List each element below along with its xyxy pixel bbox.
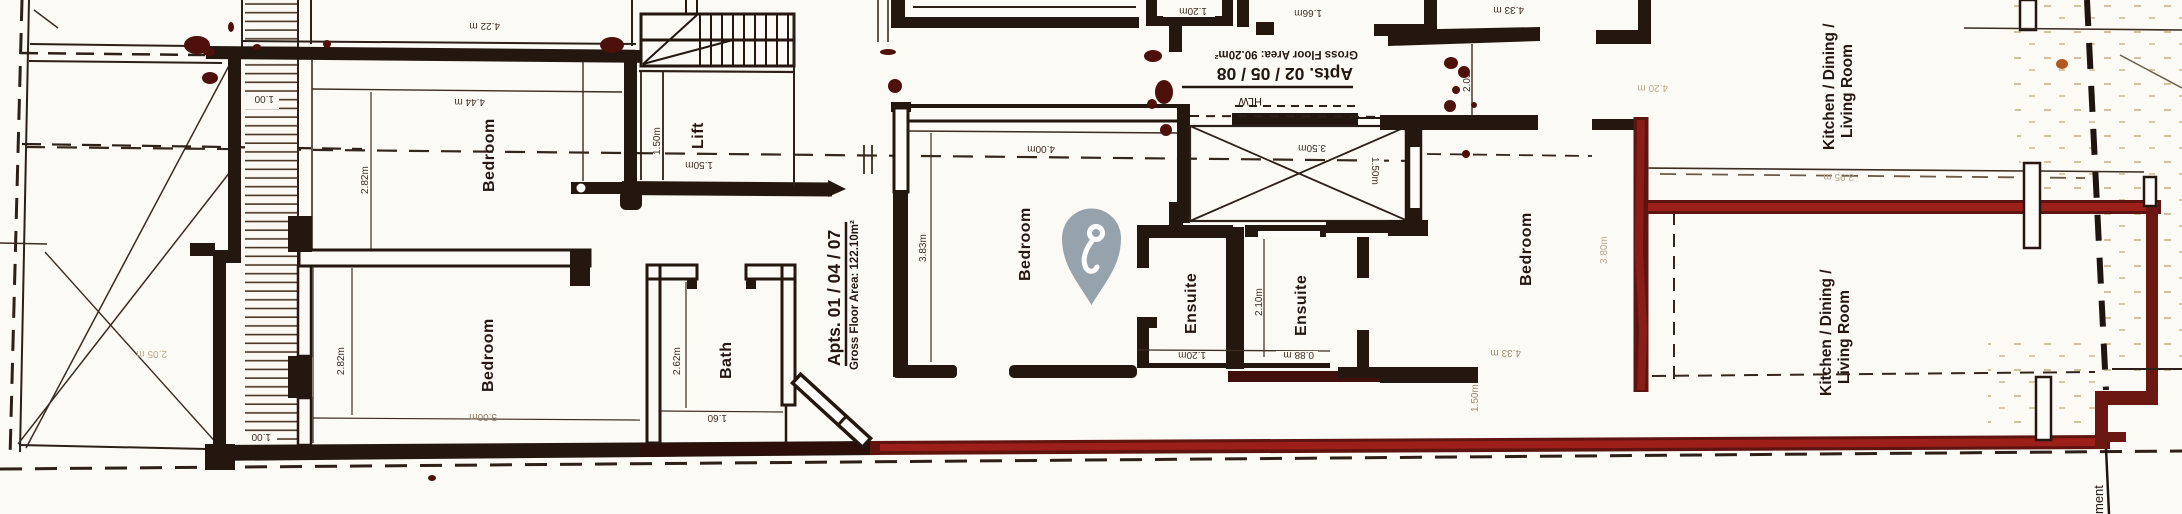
svg-text:1.50m: 1.50m — [652, 127, 663, 155]
svg-text:Bedroom: Bedroom — [1017, 207, 1034, 281]
svg-text:Bedroom: Bedroom — [480, 318, 497, 392]
svg-text:1.50m: 1.50m — [685, 159, 713, 170]
svg-text:Lift: Lift — [690, 122, 707, 149]
svg-text:Living Room: Living Room — [1836, 290, 1853, 384]
svg-text:4.44 m: 4.44 m — [454, 96, 485, 107]
svg-text:Bedroom: Bedroom — [481, 118, 498, 192]
svg-text:3.80m: 3.80m — [1599, 236, 1610, 264]
svg-text:4.33 m: 4.33 m — [1490, 347, 1521, 358]
svg-text:4.22 m: 4.22 m — [469, 20, 500, 31]
svg-text:3.50m: 3.50m — [1298, 142, 1326, 153]
svg-text:Living Room: Living Room — [1839, 44, 1856, 138]
svg-text:Apts. 02 / 05 / 08: Apts. 02 / 05 / 08 — [1217, 64, 1353, 84]
svg-text:4.20 m: 4.20 m — [1637, 82, 1668, 93]
svg-text:Ensuite: Ensuite — [1183, 273, 1200, 334]
svg-text:2.82m: 2.82m — [360, 166, 371, 194]
svg-text:3.83m: 3.83m — [918, 234, 929, 262]
svg-text:2.62m: 2.62m — [672, 347, 683, 375]
svg-text:1.66m: 1.66m — [1294, 7, 1322, 18]
svg-text:Kitchen / Dining /: Kitchen / Dining / — [1818, 269, 1835, 396]
svg-text:5.00m: 5.00m — [469, 411, 497, 422]
svg-text:3.95 m: 3.95 m — [1823, 171, 1854, 182]
svg-text:2.05 m: 2.05 m — [136, 348, 167, 359]
svg-text:1.00: 1.00 — [254, 93, 274, 104]
svg-text:ment: ment — [2091, 485, 2106, 514]
svg-text:1.00: 1.00 — [251, 431, 271, 442]
svg-text:2.82m: 2.82m — [336, 347, 347, 375]
svg-text:Apts. 01 / 04 / 07: Apts. 01 / 04 / 07 — [824, 230, 844, 366]
svg-text:4.33 m: 4.33 m — [1493, 4, 1524, 15]
svg-text:Gross Floor Area: 122.10m²: Gross Floor Area: 122.10m² — [849, 220, 861, 370]
svg-text:1.50m: 1.50m — [1369, 157, 1380, 185]
svg-text:Kitchen / Dining /: Kitchen / Dining / — [1821, 23, 1838, 150]
svg-text:1.50m: 1.50m — [1470, 384, 1481, 412]
svg-text:1.60: 1.60 — [707, 412, 727, 423]
svg-text:1.20m: 1.20m — [1178, 349, 1206, 360]
svg-text:0.88 m: 0.88 m — [1283, 349, 1314, 360]
svg-text:Bedroom: Bedroom — [1518, 212, 1535, 286]
svg-text:2.10m: 2.10m — [1254, 288, 1265, 316]
svg-text:4.00m: 4.00m — [1027, 143, 1055, 154]
svg-text:Gross Floor Area: 90.20m²: Gross Floor Area: 90.20m² — [1214, 48, 1358, 60]
svg-text:Ensuite: Ensuite — [1293, 275, 1310, 336]
svg-text:Bath: Bath — [718, 341, 735, 379]
svg-text:1.20m: 1.20m — [1179, 5, 1207, 16]
